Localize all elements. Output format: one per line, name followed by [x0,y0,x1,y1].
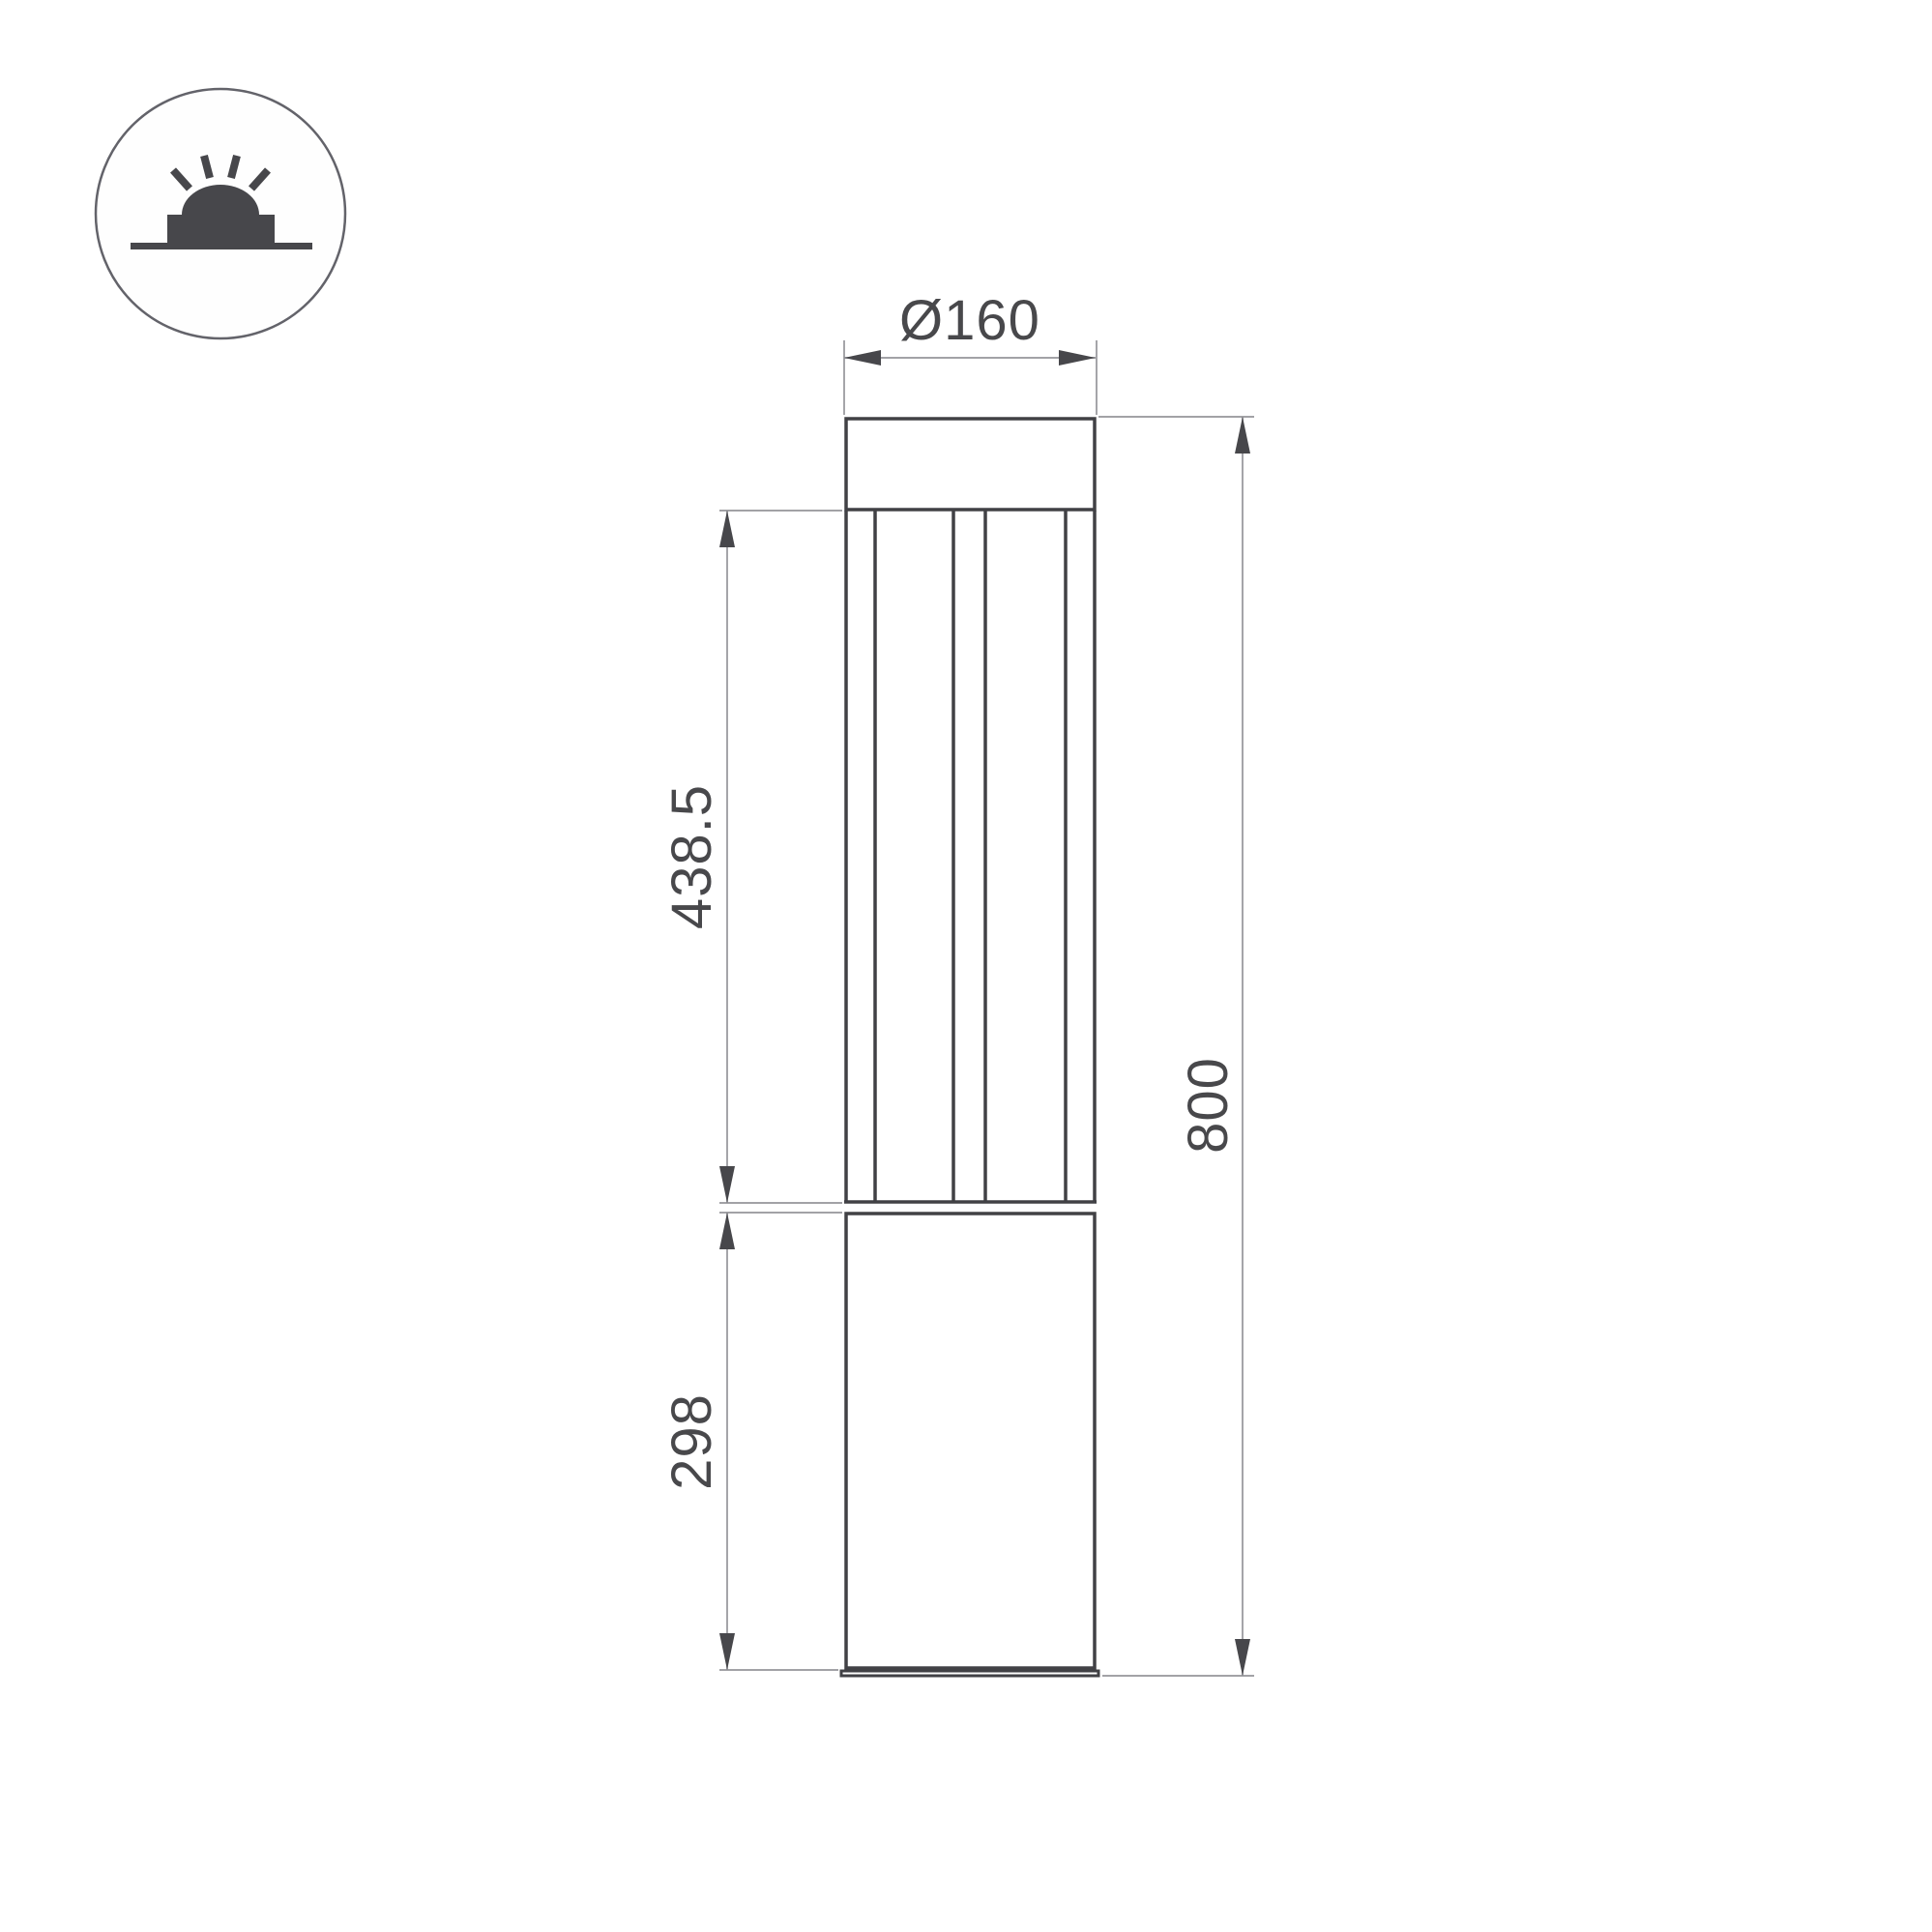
bollard-cap [846,419,1095,510]
dimension-drawing-canvas: Ø160 438.5 800 298 [0,0,1932,1932]
arrowhead-up [1235,417,1250,454]
dimension-label-diameter: Ø160 [844,293,1096,349]
bollard-outline [841,419,1098,1676]
bollard-body [846,1214,1095,1668]
arrowhead-up [719,511,735,547]
arrowhead-left [844,350,881,366]
lamp-section-ribs [846,511,1095,1202]
lamp-base [167,215,275,244]
dimension-label-total-height: 800 [1181,1057,1237,1154]
arrowhead-down [719,1166,735,1203]
ground-line [131,243,312,249]
arrowhead-down [1235,1639,1250,1676]
bollard-base-plate [841,1671,1098,1676]
dimension-label-base-height: 298 [664,1393,720,1490]
arrowhead-up [719,1213,735,1249]
surface-mounted-light-icon [96,89,345,338]
arrowhead-down [719,1633,735,1670]
arrowhead-right [1059,350,1096,366]
dimension-label-lamp-height: 438.5 [664,784,720,929]
